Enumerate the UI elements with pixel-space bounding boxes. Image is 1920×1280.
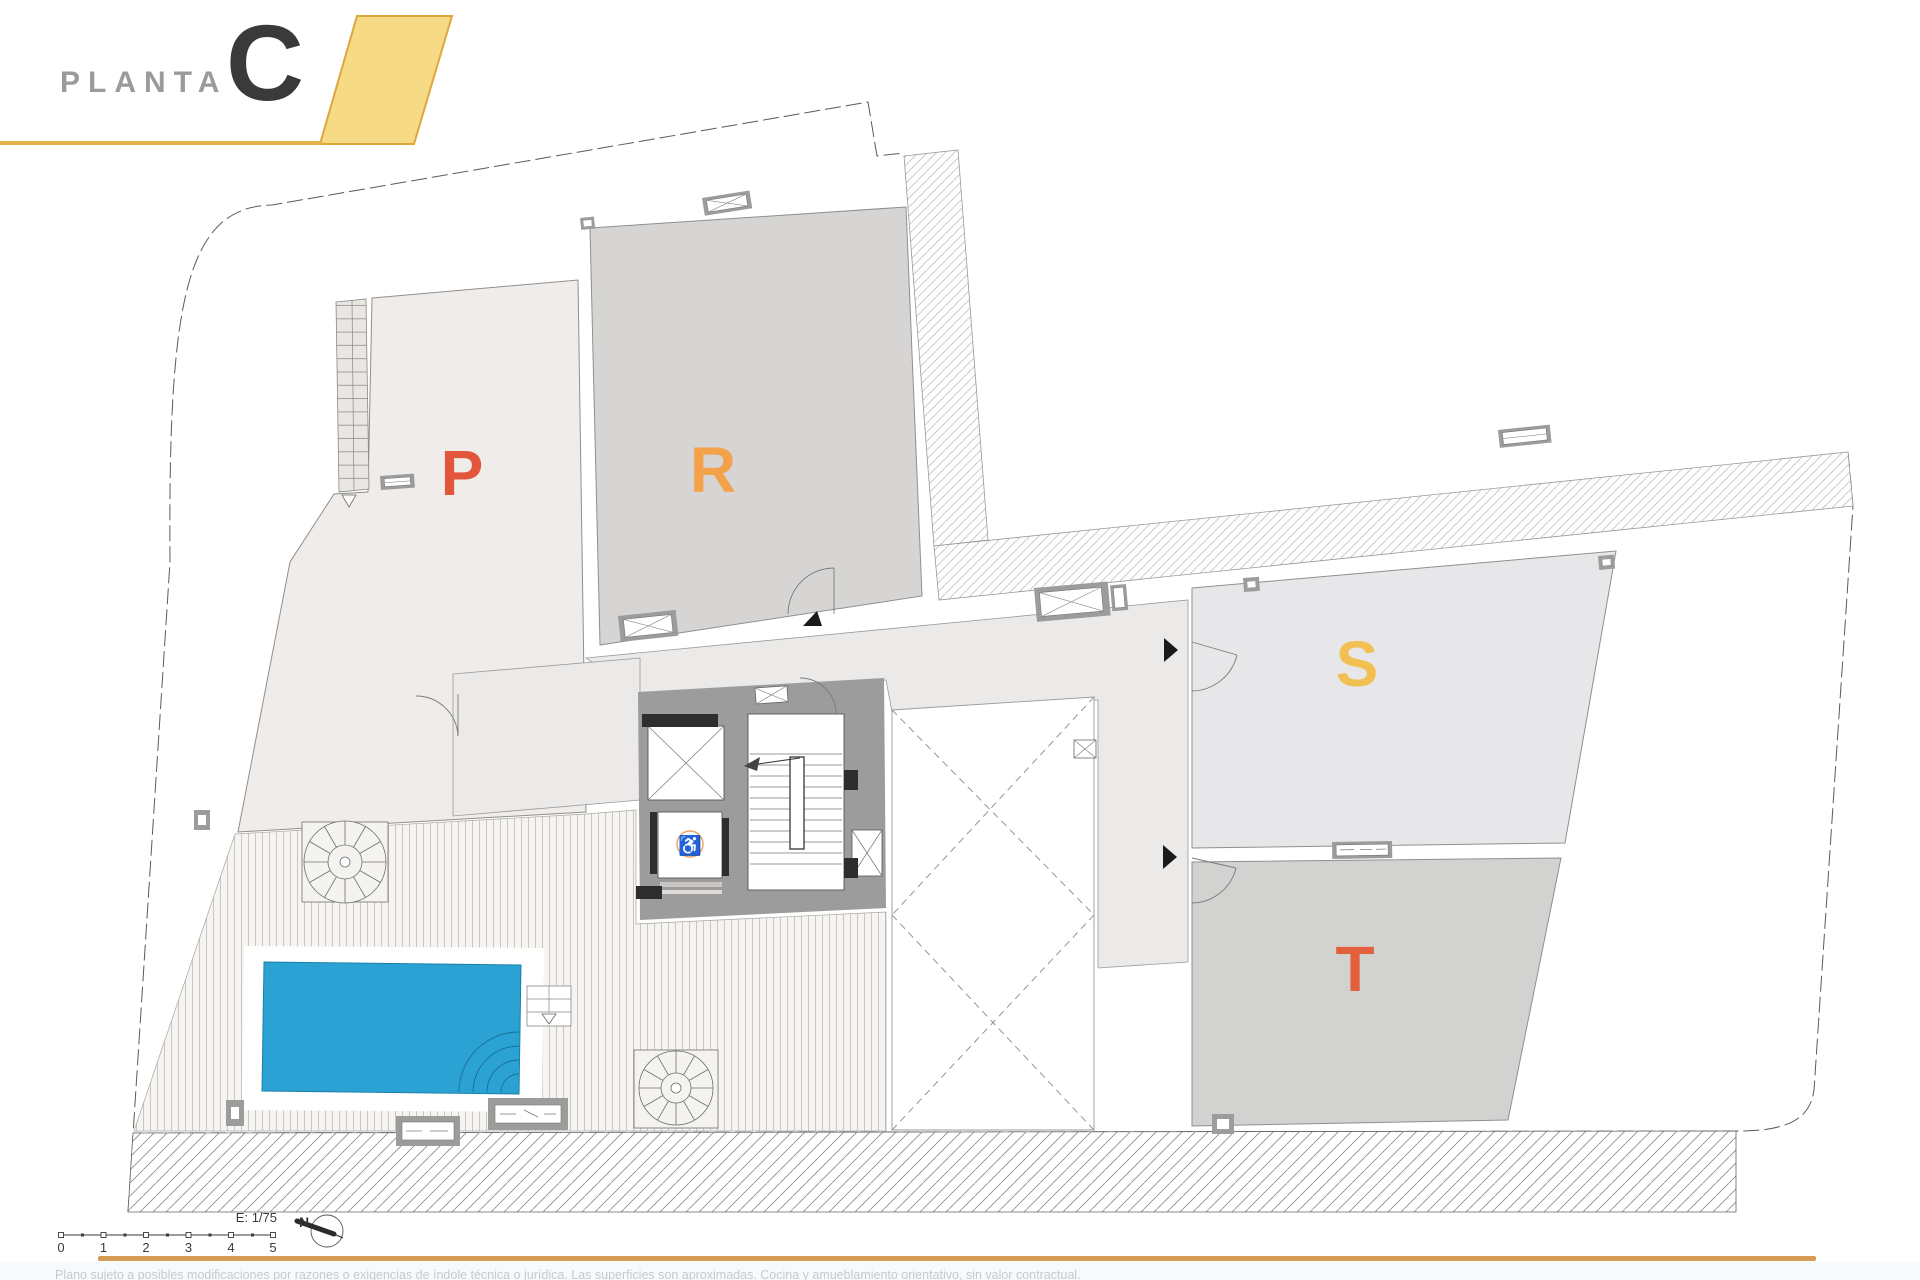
plan-word-label: PLANTA bbox=[60, 66, 227, 99]
equipment-box bbox=[396, 1116, 460, 1146]
spiral-staircase-lower bbox=[634, 1050, 718, 1128]
header: PLANTA C bbox=[0, 2, 452, 145]
unit-t-label: T bbox=[1335, 933, 1374, 1005]
unit-r-label: R bbox=[690, 434, 736, 506]
post-marker bbox=[194, 810, 210, 830]
post-marker bbox=[226, 1100, 244, 1126]
service-core: ♿ bbox=[636, 678, 886, 920]
disclaimer-text: Plano sujeto a posibles modificaciones p… bbox=[55, 1268, 1081, 1280]
vent-icon bbox=[755, 686, 788, 704]
window-icon bbox=[1212, 1114, 1234, 1134]
void-double-height bbox=[892, 697, 1094, 1130]
plan-letter-label: C bbox=[226, 2, 304, 123]
scale-tick-label: 0 bbox=[57, 1240, 64, 1255]
sidewalk-hatch-band bbox=[128, 1131, 1736, 1212]
spiral-staircase-upper bbox=[302, 821, 388, 903]
scale-tick-label: 2 bbox=[142, 1240, 149, 1255]
vent-icon bbox=[1074, 740, 1096, 758]
floorplan-drawing: PLANTA C bbox=[0, 0, 1920, 1280]
unit-p-label: P bbox=[441, 437, 484, 509]
scale-tick-label: 5 bbox=[269, 1240, 276, 1255]
window-icon bbox=[1243, 577, 1260, 592]
header-accent-parallelogram bbox=[320, 16, 452, 144]
floorplan-page: { "header": { "plan_word": "PLANTA", "pl… bbox=[0, 0, 1920, 1280]
swimming-pool bbox=[262, 962, 521, 1094]
unit-r-floor bbox=[590, 207, 922, 645]
scale-tick-label: 3 bbox=[185, 1240, 192, 1255]
lobby-floor bbox=[453, 658, 640, 816]
equipment-box bbox=[488, 1098, 568, 1130]
wheelchair-icon: ♿ bbox=[678, 834, 702, 857]
footer-rule bbox=[98, 1256, 1816, 1261]
side-stair-strip bbox=[336, 299, 369, 507]
window-icon bbox=[1598, 555, 1615, 570]
scale-tick-label: 4 bbox=[227, 1240, 234, 1255]
north-arrow: N bbox=[297, 1214, 343, 1247]
window-icon bbox=[580, 217, 595, 230]
window-icon bbox=[380, 474, 415, 490]
north-label: N bbox=[299, 1214, 309, 1230]
window-icon bbox=[702, 190, 752, 215]
window-icon bbox=[1498, 425, 1552, 448]
stairwell bbox=[744, 714, 844, 890]
pool-ladder-steps bbox=[527, 986, 571, 1026]
scale-label: E: 1/75 bbox=[236, 1210, 277, 1225]
unit-s-label: S bbox=[1336, 628, 1379, 700]
window-icon bbox=[1332, 841, 1392, 859]
unit-s-floor bbox=[1192, 551, 1616, 848]
unit-t-floor bbox=[1192, 858, 1561, 1126]
scale-tick-label: 1 bbox=[100, 1240, 107, 1255]
header-accent-underline bbox=[0, 141, 322, 145]
scale-bar: E: 1/75 0 1 2 3 4 5 bbox=[57, 1210, 277, 1255]
